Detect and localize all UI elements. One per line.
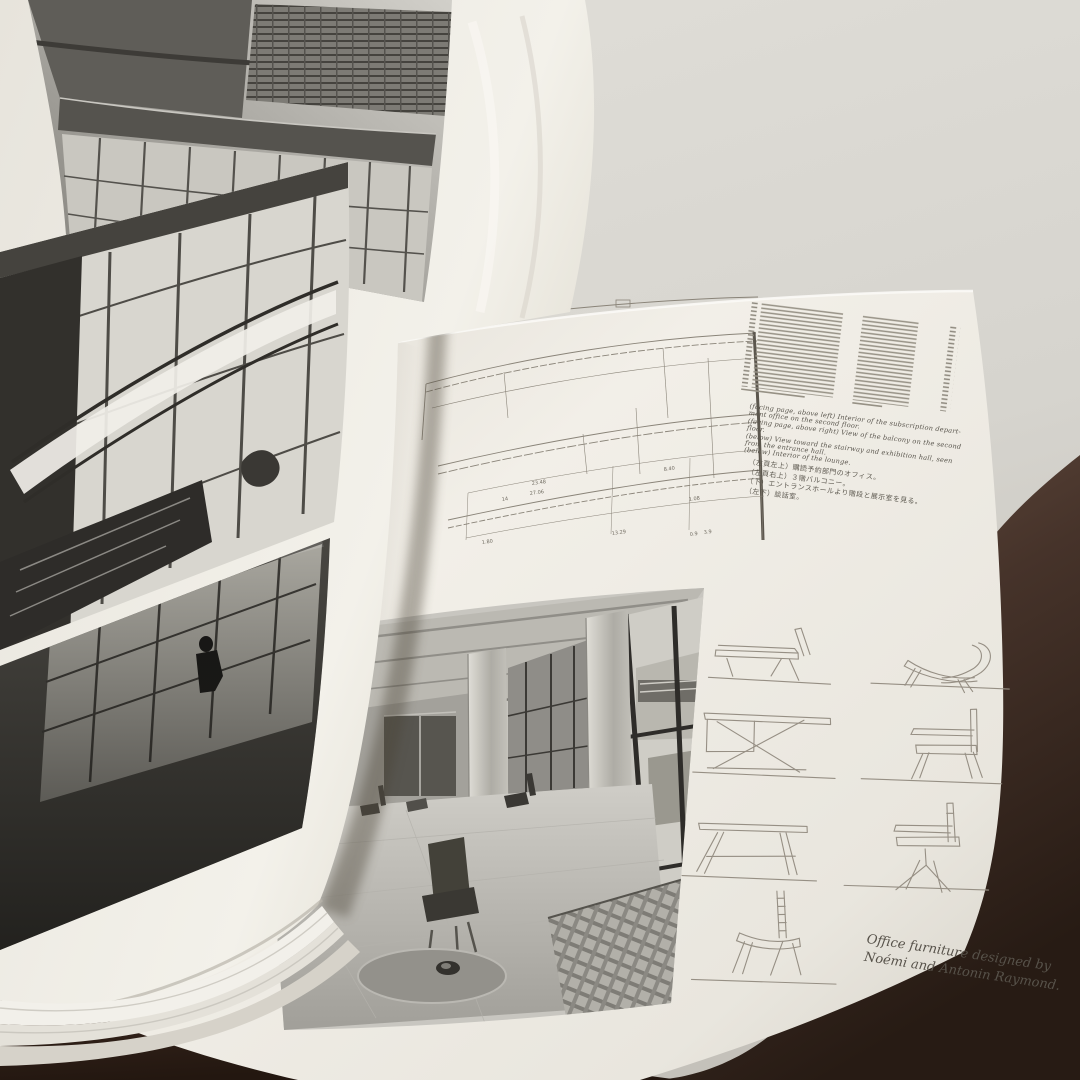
plan-dimension: 3.9 (703, 529, 712, 536)
scene-art: 23.48 27.06 14 13.29 1.80 8.40 1.08 0.9 … (0, 0, 1080, 1080)
plan-dimension: 0.9 (689, 531, 698, 538)
book-spread-photo: 23.48 27.06 14 13.29 1.80 8.40 1.08 0.9 … (0, 0, 1080, 1080)
plan-dimension: 14 (501, 496, 508, 503)
